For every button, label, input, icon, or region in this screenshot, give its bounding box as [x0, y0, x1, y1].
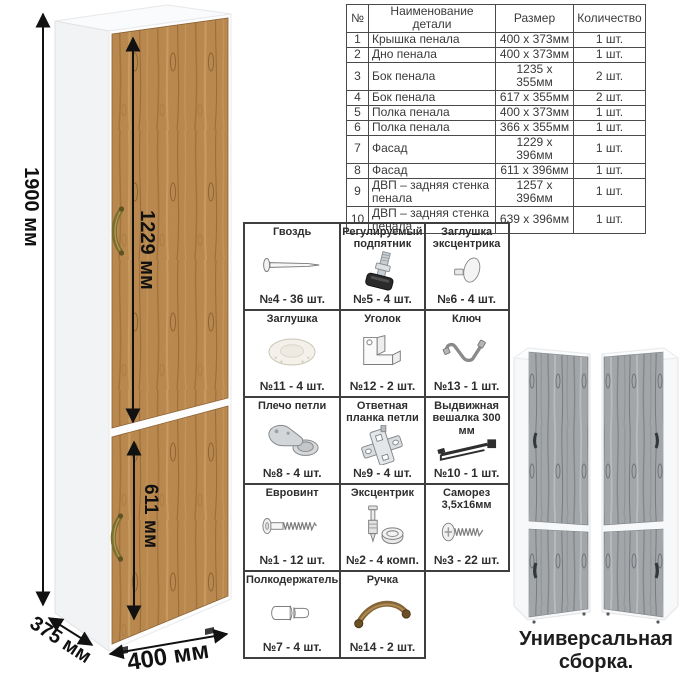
col-header-name: Наименование детали: [369, 5, 496, 33]
table-cell: 1 шт.: [574, 105, 646, 120]
adjustable-foot-icon: [365, 251, 399, 292]
cabinet-drawing: [0, 0, 245, 683]
table-cell: 611 х 396мм: [496, 163, 574, 178]
assembly-sheet: 1900 мм 1229 мм 611 мм 375 мм 400 мм № Н…: [0, 0, 700, 683]
table-row: 8Фасад611 х 396мм1 шт.: [347, 163, 646, 178]
universal-assembly-caption: Универсальная сборка.: [492, 628, 700, 674]
hinge-plate-icon: [358, 425, 406, 466]
hardware-cell: Заглушка №11 - 4 шт.: [244, 310, 340, 397]
table-cell: 1 шт.: [574, 47, 646, 62]
dimension-upper-door-label: 1229 мм: [134, 205, 158, 295]
table-header-row: № Наименование детали Размер Количество: [347, 5, 646, 33]
table-cell: 1 шт.: [574, 120, 646, 135]
table-row: 5Полка пенала400 х 373мм1 шт.: [347, 105, 646, 120]
table-cell: 1 шт.: [574, 178, 646, 206]
table-cell: 2 шт.: [574, 62, 646, 90]
table-cell: Крышка пенала: [369, 32, 496, 47]
table-cell: 1 шт.: [574, 32, 646, 47]
dimension-height-label: 1900 мм: [18, 162, 42, 252]
hardware-cell: Ответная планка петли №9 - 4 шт.: [340, 397, 424, 484]
variant-cabinet-right: [602, 348, 678, 624]
table-row: 4Бок пенала617 х 355мм2 шт.: [347, 90, 646, 105]
table-cell: 2: [347, 47, 369, 62]
table-cell: Полка пенала: [369, 105, 496, 120]
hardware-cell: Полкодержатель №7 - 4 шт.: [244, 571, 340, 658]
dimension-lower-door-label: 611 мм: [137, 478, 161, 554]
hardware-cell: Заглушка эксцентрика №6 - 4 шт.: [425, 223, 509, 310]
cabinet-diagram: 1900 мм 1229 мм 611 мм 375 мм 400 мм: [0, 0, 245, 683]
table-row: 9ДВП – задняя стенка пенала1257 х 396мм1…: [347, 178, 646, 206]
table-cell: 4: [347, 90, 369, 105]
table-cell: 400 х 373мм: [496, 32, 574, 47]
table-cell: 6: [347, 120, 369, 135]
shelf-pin-icon: [267, 586, 317, 640]
col-header-size: Размер: [496, 5, 574, 33]
table-cell: 1257 х 396мм: [496, 178, 574, 206]
col-header-num: №: [347, 5, 369, 33]
hardware-cell: Уголок №12 - 2 шт.: [340, 310, 424, 397]
lower-door: [112, 406, 228, 644]
hardware-cell: Эксцентрик №2 - 4 комп.: [340, 484, 424, 571]
table-cell: 1 шт.: [574, 135, 646, 163]
table-cell: 366 х 355мм: [496, 120, 574, 135]
table-row: 7Фасад1229 х 396мм1 шт.: [347, 135, 646, 163]
variant-cabinets-drawing: [492, 336, 700, 628]
self-tapping-screw-icon: [440, 512, 494, 553]
table-cell: 1 шт.: [574, 163, 646, 178]
hardware-cell: Ручка №14 - 2 шт.: [340, 571, 424, 658]
confirmat-screw-icon: [261, 499, 323, 553]
table-cell: 7: [347, 135, 369, 163]
table-cell: Фасад: [369, 135, 496, 163]
cabinet-doors: [112, 18, 228, 644]
hardware-cell: Плечо петли №8 - 4 шт.: [244, 397, 340, 484]
table-cell: 1229 х 396мм: [496, 135, 574, 163]
table-cell: 617 х 355мм: [496, 90, 574, 105]
table-cell: Бок пенала: [369, 62, 496, 90]
table-cell: 9: [347, 178, 369, 206]
cam-lock-icon: [357, 499, 407, 553]
table-row: 2Дно пенала400 х 373мм1 шт.: [347, 47, 646, 62]
table-cell: 2 шт.: [574, 90, 646, 105]
table-cell: 400 х 373мм: [496, 105, 574, 120]
hardware-cell: Гвоздь №4 - 36 шт.: [244, 223, 340, 310]
hardware-cell: Регулируемый подпятник №5 - 4 шт.: [340, 223, 424, 310]
corner-bracket-icon: [356, 325, 408, 379]
table-cell: Фасад: [369, 163, 496, 178]
table-cell: Бок пенала: [369, 90, 496, 105]
table-cell: 3: [347, 62, 369, 90]
table-cell: 1235 х 355мм: [496, 62, 574, 90]
upper-door: [112, 18, 228, 428]
hinge-arm-icon: [264, 412, 320, 466]
hardware-grid: Гвоздь №4 - 36 шт. Регулируемый подпятни…: [243, 222, 510, 659]
table-cell: 1 шт.: [574, 206, 646, 234]
cover-cap-icon: [267, 325, 317, 379]
table-cell: Дно пенала: [369, 47, 496, 62]
cam-cover-icon: [448, 251, 486, 292]
table-cell: Полка пенала: [369, 120, 496, 135]
table-cell: 1: [347, 32, 369, 47]
handle-icon: [351, 586, 413, 640]
assembly-variants: [492, 336, 700, 628]
hardware-cell: Евровинт №1 - 12 шт.: [244, 484, 340, 571]
nail-icon: [261, 238, 323, 292]
table-cell: 5: [347, 105, 369, 120]
table-row: 6Полка пенала366 х 355мм1 шт.: [347, 120, 646, 135]
table-cell: 400 х 373мм: [496, 47, 574, 62]
table-cell: 8: [347, 163, 369, 178]
table-cell: ДВП – задняя стенка пенала: [369, 178, 496, 206]
pullout-hanger-icon: [436, 437, 498, 466]
parts-table: № Наименование детали Размер Количество …: [346, 4, 646, 234]
table-row: 3Бок пенала1235 х 355мм2 шт.: [347, 62, 646, 90]
variant-cabinet-left: [514, 348, 590, 624]
table-row: 1Крышка пенала400 х 373мм1 шт.: [347, 32, 646, 47]
col-header-qty: Количество: [574, 5, 646, 33]
hex-key-icon: [441, 325, 493, 379]
